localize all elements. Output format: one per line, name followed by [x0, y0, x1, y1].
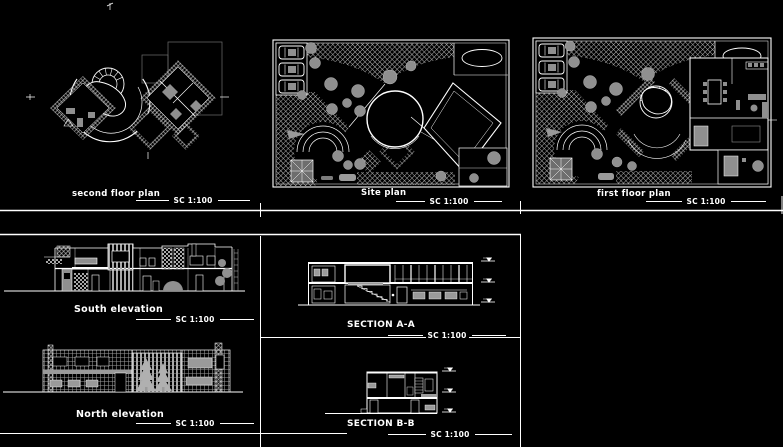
first-floor-plan-scale: SC 1:100 — [646, 197, 766, 206]
level-markers — [442, 368, 456, 412]
scale-underline — [218, 200, 251, 201]
site-plan-drawing — [261, 0, 522, 211]
section-aa-scale: SC 1:100 — [388, 331, 506, 340]
scale-text: SC 1:100 — [685, 197, 728, 206]
scale-underline — [731, 201, 767, 202]
central-plaza — [367, 91, 423, 147]
trees — [215, 249, 238, 291]
north-elevation-drawing — [0, 337, 261, 447]
scale-underline — [388, 335, 423, 336]
north-elevation-scale: SC 1:100 — [136, 419, 254, 428]
second-floor-plan-scale: SC 1:100 — [136, 196, 250, 205]
paved-square — [291, 160, 313, 182]
spiral-stair — [640, 86, 672, 118]
parking-area — [536, 41, 567, 93]
scale-underline — [136, 200, 169, 201]
dining-table — [708, 80, 721, 104]
scale-underline — [136, 319, 171, 320]
first-floor-plan-drawing — [522, 0, 783, 211]
bedroom-wing — [718, 150, 768, 184]
car — [539, 44, 564, 57]
paved-square — [550, 158, 572, 180]
scale-underline — [646, 201, 682, 202]
living-wing — [690, 58, 768, 150]
scale-underline — [388, 434, 426, 435]
second-floor-plan-drawing — [0, 0, 261, 211]
cad-drawing-sheet: second floor plan SC 1:100 Site plan SC … — [0, 0, 783, 447]
scale-text: SC 1:100 — [429, 430, 472, 439]
court-bottom-right — [459, 148, 507, 186]
scale-underline — [474, 201, 503, 202]
bed — [694, 126, 708, 146]
car — [539, 61, 564, 74]
south-elevation-title: South elevation — [74, 304, 163, 315]
facade-details — [44, 244, 215, 291]
scale-text: SC 1:100 — [428, 197, 471, 206]
pond-area — [454, 43, 508, 75]
parking-area — [276, 43, 307, 95]
scale-text: SC 1:100 — [426, 331, 469, 340]
section-aa-drawing — [261, 211, 521, 337]
scale-underline — [475, 434, 513, 435]
car — [279, 63, 304, 76]
scale-underline — [220, 423, 255, 424]
section-bb-scale: SC 1:100 — [388, 430, 512, 439]
scale-underline — [396, 201, 425, 202]
section-aa-title: SECTION A-A — [347, 320, 415, 330]
bed — [724, 156, 738, 176]
section-bb-title: SECTION B-B — [347, 419, 415, 429]
scale-text: SC 1:100 — [172, 196, 215, 205]
scale-underline — [220, 319, 255, 320]
scale-text: SC 1:100 — [174, 315, 217, 324]
scale-underline — [136, 423, 171, 424]
trellis — [234, 249, 238, 291]
scale-underline — [472, 335, 507, 336]
site-plan-scale: SC 1:100 — [396, 197, 502, 206]
arched-shrub — [163, 281, 183, 291]
car — [279, 46, 304, 59]
left-rooms — [312, 266, 335, 303]
level-markers — [481, 258, 495, 302]
scale-text: SC 1:100 — [174, 419, 217, 428]
south-elevation-scale: SC 1:100 — [136, 315, 254, 324]
